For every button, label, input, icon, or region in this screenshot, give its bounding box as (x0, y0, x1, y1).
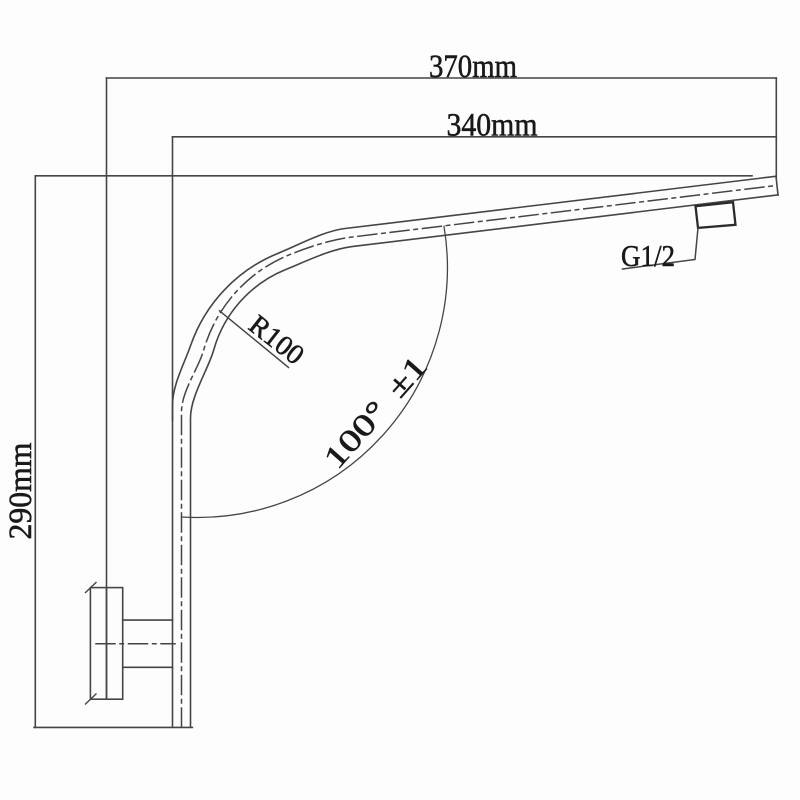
svg-text:G1/2: G1/2 (621, 238, 675, 273)
svg-text:100° ±1: 100° ±1 (316, 349, 434, 476)
svg-text:R100: R100 (243, 309, 310, 371)
svg-text:290mm: 290mm (3, 442, 39, 539)
svg-text:340mm: 340mm (447, 108, 538, 144)
svg-text:370mm: 370mm (429, 49, 517, 85)
